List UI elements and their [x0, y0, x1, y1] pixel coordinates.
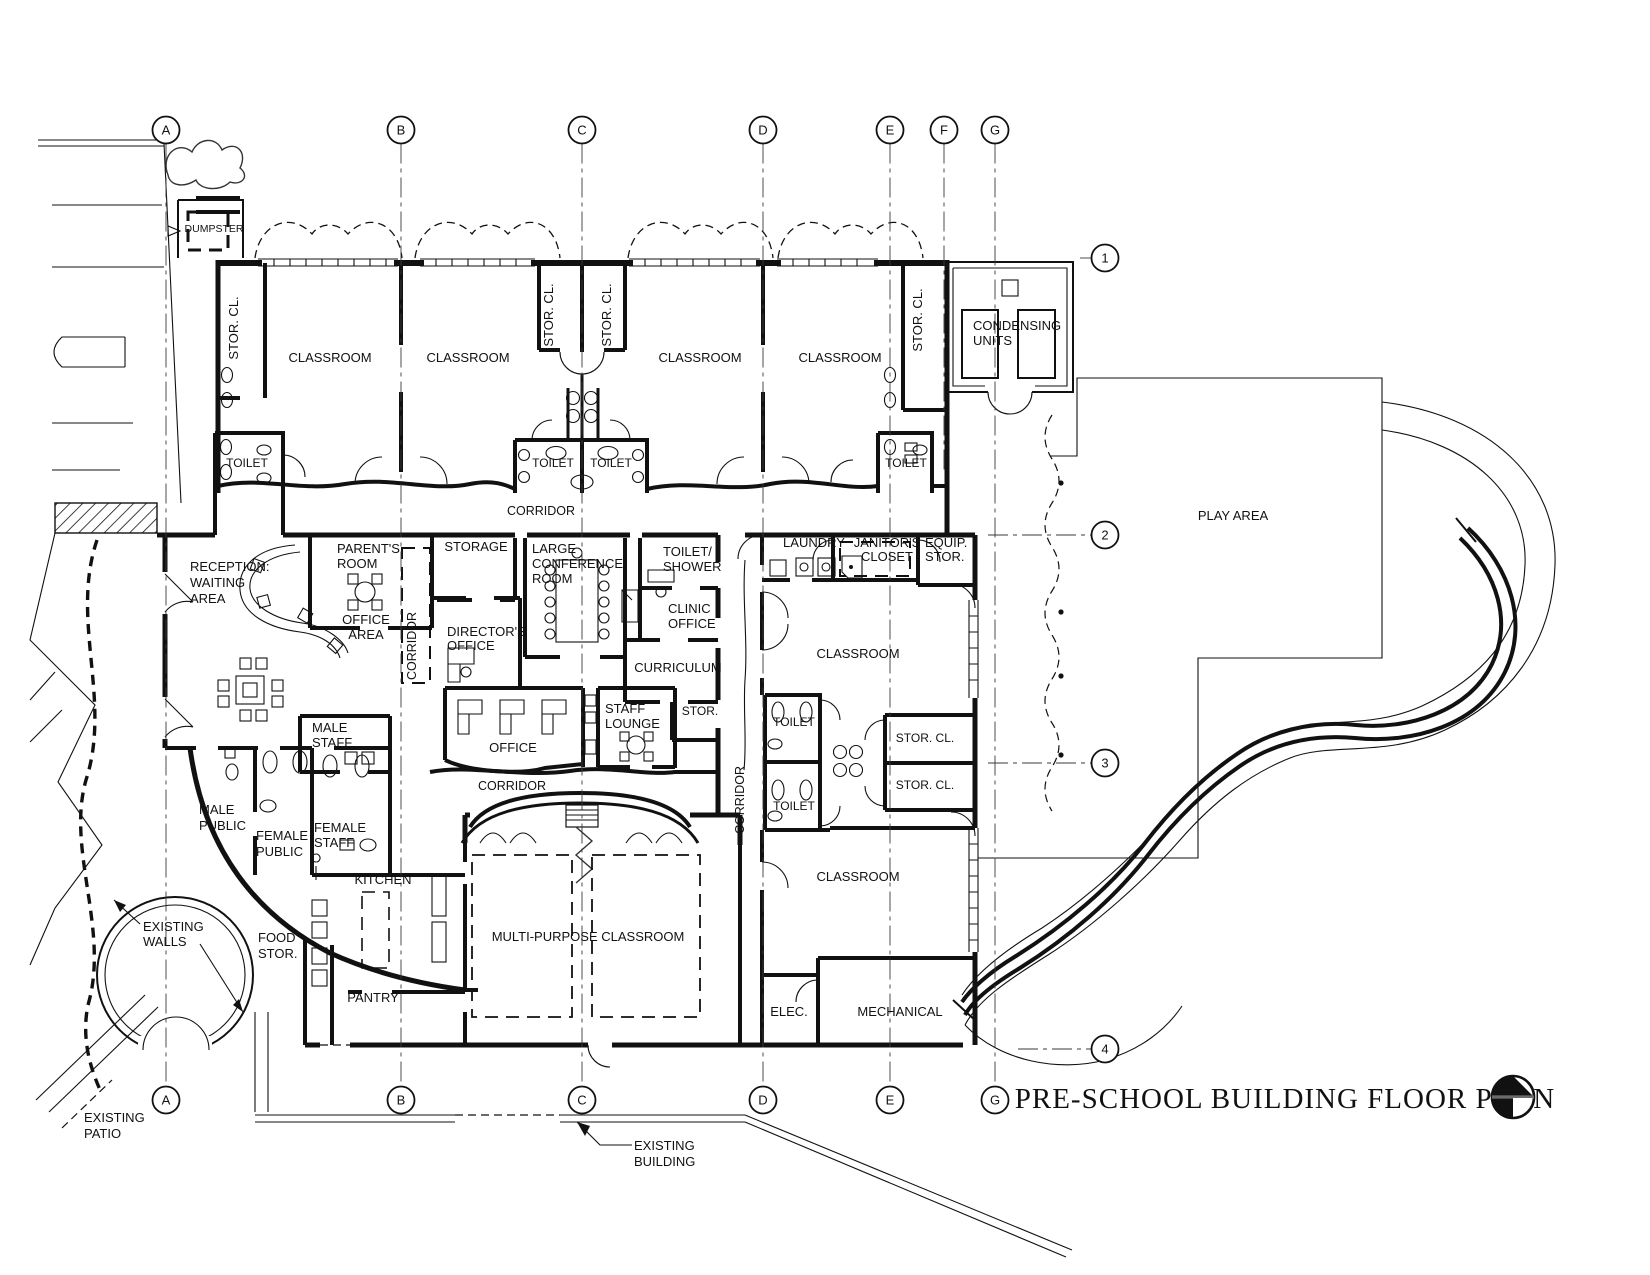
label-pantry: PANTRY [347, 990, 399, 1005]
label-female-public: FEMALEPUBLIC [256, 828, 308, 859]
grid-bubble-right-3-label: 3 [1101, 756, 1108, 771]
label-kitchen: KITCHEN [354, 872, 411, 887]
label-existing-walls: EXISTINGWALLS [143, 919, 204, 949]
existing-walls-lines [30, 503, 157, 1092]
label-classroom-bottom-right: CLASSROOM [816, 869, 899, 884]
label-male-staff: MALESTAFF [312, 720, 352, 750]
grid-bubble-top-B-label: B [397, 123, 406, 138]
grid-bubble-top-C-label: C [577, 123, 586, 138]
label-toilet-right-1: TOILET [773, 715, 815, 729]
label-corridor-admin: CORRIDOR [405, 612, 419, 680]
label-classroom-3: CLASSROOM [658, 350, 741, 365]
grid-bubble-top-G-label: G [990, 123, 1000, 138]
drawing-title: PRE-SCHOOL BUILDING FLOOR PLAN [1015, 1083, 1555, 1115]
label-classroom-4: CLASSROOM [798, 350, 881, 365]
floor-plan-drawing: ABCDEFGABCDEG1234 STOR. CL.CLASSROOMCLAS… [0, 0, 1650, 1275]
top-wing-fixtures [221, 368, 928, 490]
label-mechanical: MECHANICAL [857, 1004, 942, 1019]
label-toilet-classroom-c2: TOILET [590, 456, 632, 470]
label-dumpster: DUMPSTER [185, 223, 244, 235]
label-stor-cl-right-2: STOR. CL. [896, 778, 954, 792]
label-classroom-middle-right: CLASSROOM [816, 646, 899, 661]
label-stor-cl-left: STOR. CL. [226, 296, 241, 359]
label-existing-building: EXISTINGBUILDING [634, 1138, 695, 1169]
grid-bubble-right-4-label: 4 [1101, 1042, 1108, 1057]
label-directors-office: DIRECTOR'SOFFICE [447, 624, 526, 653]
label-toilet-classroom-left: TOILET [226, 456, 268, 470]
label-toilet-classroom-c1: TOILET [532, 456, 574, 470]
site-parking [38, 140, 181, 503]
label-staff-lounge: STAFFLOUNGE [605, 701, 660, 731]
label-laundry: LAUNDRY [783, 535, 845, 550]
label-stor-cl-center-left: STOR. CL. [541, 283, 556, 346]
label-toilet-classroom-right: TOILET [885, 456, 927, 470]
grid-bubble-bottom-G-label: G [990, 1093, 1000, 1108]
label-stor-cl-center-right: STOR. CL. [599, 283, 614, 346]
top-wing-walls [215, 259, 947, 493]
label-corridor-north: CORRIDOR [507, 504, 575, 518]
label-classroom-1: CLASSROOM [288, 350, 371, 365]
label-elec: ELEC. [770, 1004, 808, 1019]
label-stor-admin: STOR. [682, 704, 718, 718]
existing-building-lines [255, 1115, 1072, 1257]
grid-bubble-bottom-B-label: B [397, 1093, 406, 1108]
label-curriculum: CURRICULUM [634, 660, 721, 675]
label-corridor-east: CORRIDOR [733, 766, 747, 834]
label-parents-room: PARENT'SROOM [337, 541, 400, 571]
label-stor-cl-right-1: STOR. CL. [896, 731, 954, 745]
label-play-area: PLAY AREA [1198, 508, 1269, 523]
grid-bubble-bottom-D-label: D [758, 1093, 767, 1108]
grid-bubble-bottom-A-label: A [162, 1093, 171, 1108]
grid-bubble-top-E-label: E [886, 123, 895, 138]
grid-bubble-top-D-label: D [758, 123, 767, 138]
label-male-public: MALEPUBLIC [199, 802, 246, 833]
label-toilet-shower: TOILET/SHOWER [663, 544, 722, 574]
grid-bubble-right-2-label: 2 [1101, 528, 1108, 543]
label-office-area: OFFICEAREA [342, 612, 390, 642]
label-existing-patio: EXISTINGPATIO [84, 1110, 145, 1141]
label-equip-stor: EQUIP.STOR. [925, 535, 967, 564]
grid-bubble-top-F-label: F [940, 123, 948, 138]
label-storage: STORAGE [444, 539, 508, 554]
floor-plan-sheet: ABCDEFGABCDEG1234 STOR. CL.CLASSROOMCLAS… [0, 0, 1650, 1275]
grid-bubble-bottom-C-label: C [577, 1093, 586, 1108]
admin-walls [157, 493, 718, 815]
label-stor-cl-right-top: STOR. CL. [910, 288, 925, 351]
grid-bubble-top-A-label: A [162, 123, 171, 138]
label-janitors-closet: JANITOR'SCLOSET [854, 535, 921, 564]
leader-lines [114, 900, 243, 1012]
serpentine-path [953, 402, 1555, 1065]
grid-bubble-right-1-label: 1 [1101, 251, 1108, 266]
label-food-stor: FOODSTOR. [258, 930, 298, 961]
right-wing-walls [738, 483, 978, 1045]
label-classroom-2: CLASSROOM [426, 350, 509, 365]
north-arrow-icon [1492, 1076, 1534, 1118]
label-multi-purpose-classroom: MULTI-PURPOSE CLASSROOM [492, 929, 685, 944]
label-toilet-right-2: TOILET [773, 799, 815, 813]
label-corridor-south: CORRIDOR [478, 779, 546, 793]
grid-bubble-bottom-E-label: E [886, 1093, 895, 1108]
awning-clouds [255, 222, 923, 258]
label-clinic-office: CLINICOFFICE [668, 601, 716, 631]
label-office: OFFICE [489, 740, 537, 755]
label-female-staff: FEMALESTAFF [314, 820, 366, 850]
play-area-boundary [978, 378, 1382, 858]
